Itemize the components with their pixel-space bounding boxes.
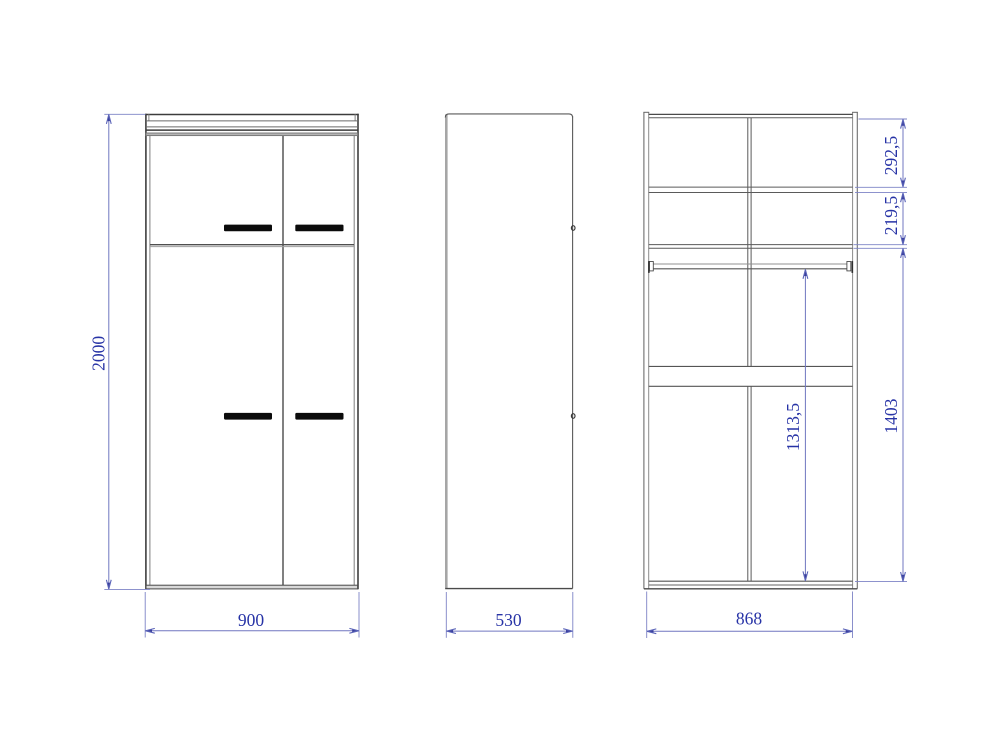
svg-text:900: 900 (238, 610, 265, 630)
svg-text:1403: 1403 (881, 398, 901, 433)
svg-text:1313,5: 1313,5 (783, 403, 803, 451)
svg-text:219,5: 219,5 (881, 196, 901, 236)
svg-text:868: 868 (736, 609, 763, 629)
svg-text:2000: 2000 (89, 336, 109, 371)
svg-text:530: 530 (495, 610, 522, 630)
svg-text:292,5: 292,5 (881, 136, 901, 176)
